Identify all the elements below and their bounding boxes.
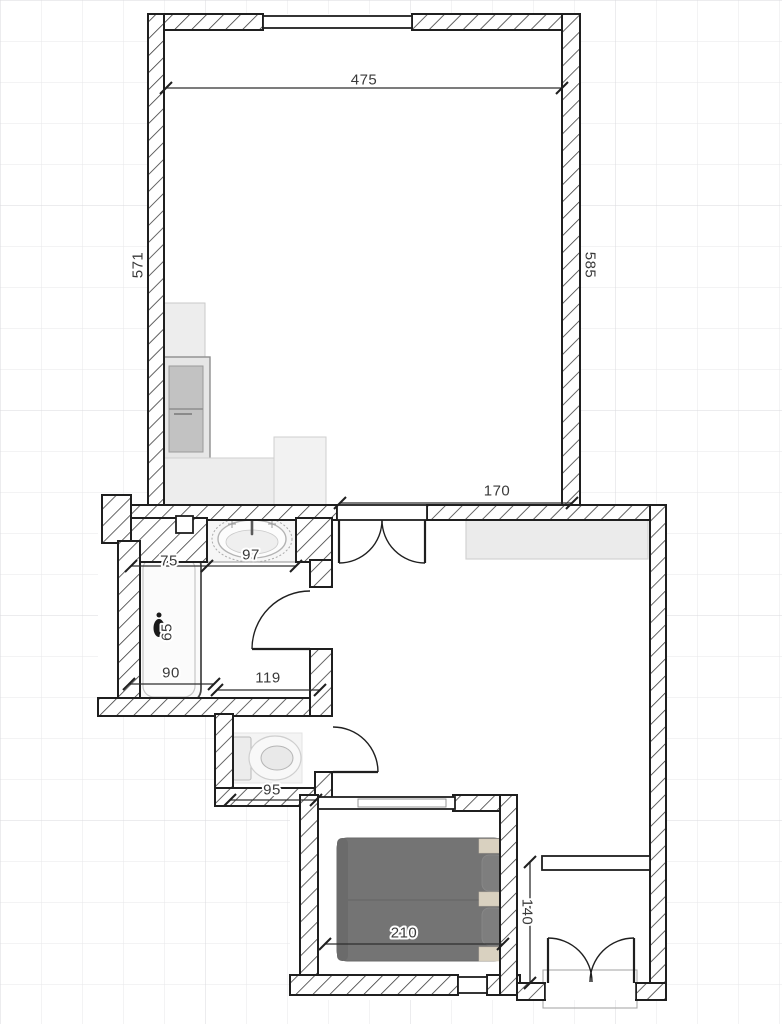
bath-wall-right-upper xyxy=(310,560,332,587)
dim-wc-width: 95 xyxy=(263,782,281,799)
kitchen-counter-bottom[interactable] xyxy=(164,458,276,506)
dim-bath-top-left: 75 xyxy=(160,553,178,570)
entry-stub-wall xyxy=(102,495,131,543)
balcony-shelf[interactable] xyxy=(542,856,650,870)
living-wall-top-left xyxy=(148,14,263,30)
living-window[interactable] xyxy=(263,16,412,28)
bedroom-wall-right xyxy=(500,795,517,995)
balcony-wall-bottom-right xyxy=(636,983,666,1000)
living-wall-top-right xyxy=(412,14,580,30)
floor-plan-svg: 475 571 585 170 75 97 65 90 119 95 210 1… xyxy=(0,0,782,1024)
bath-wall-block-right xyxy=(296,518,332,562)
bedroom-window[interactable] xyxy=(458,977,487,993)
dim-hall-top: 170 xyxy=(484,483,511,500)
dim-bath-bottom-left: 90 xyxy=(162,665,180,682)
dim-living-side-left: 571 xyxy=(130,252,147,279)
dim-sink-width: 97 xyxy=(242,547,260,564)
dim-bed-width: 210 xyxy=(391,925,418,942)
dim-balcony-depth: 140 xyxy=(519,899,536,926)
wall-vent-box xyxy=(176,516,193,533)
living-wall-left xyxy=(148,14,164,508)
hall-wall-top-right xyxy=(427,505,666,520)
bedroom-wall-bottom-left xyxy=(290,975,458,995)
dim-tub-length: 65 xyxy=(159,623,176,641)
balcony-wall-bottom-left xyxy=(517,983,545,1000)
floor-plan-canvas: 475 571 585 170 75 97 65 90 119 95 210 1… xyxy=(0,0,782,1024)
hall-wall-right xyxy=(650,505,666,1000)
dim-bath-bottom-right: 119 xyxy=(255,670,280,687)
bedroom-wall-left xyxy=(300,795,318,995)
double-bed[interactable] xyxy=(337,838,504,961)
dim-living-width: 475 xyxy=(351,72,378,89)
living-wall-right xyxy=(562,14,580,508)
kitchen-counter-right[interactable] xyxy=(274,437,326,506)
hall-wardrobe[interactable] xyxy=(466,518,648,559)
kitchen-upper-cabinet[interactable] xyxy=(164,303,205,358)
bedroom-wall-top-opening xyxy=(316,797,455,809)
bath-wall-right-lower xyxy=(310,649,332,716)
kitchen-appliance[interactable] xyxy=(161,357,210,461)
dim-living-side-right: 585 xyxy=(582,252,599,279)
toilet[interactable] xyxy=(228,733,302,783)
